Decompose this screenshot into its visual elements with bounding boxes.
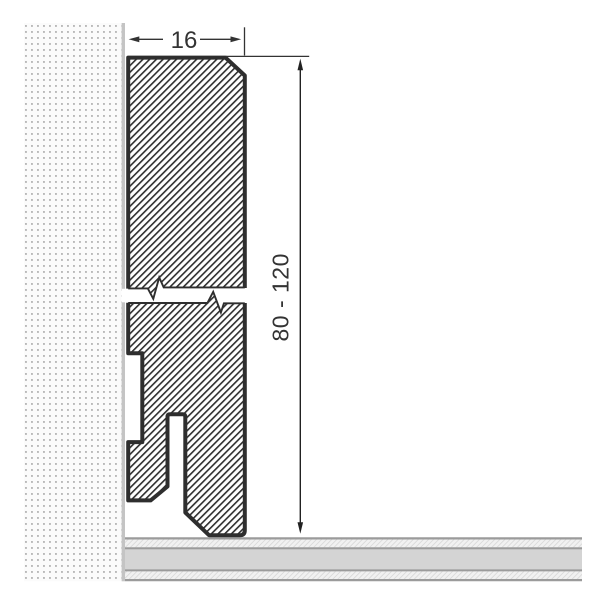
svg-text:80 - 120: 80 - 120: [267, 253, 293, 341]
svg-text:16: 16: [171, 27, 198, 54]
